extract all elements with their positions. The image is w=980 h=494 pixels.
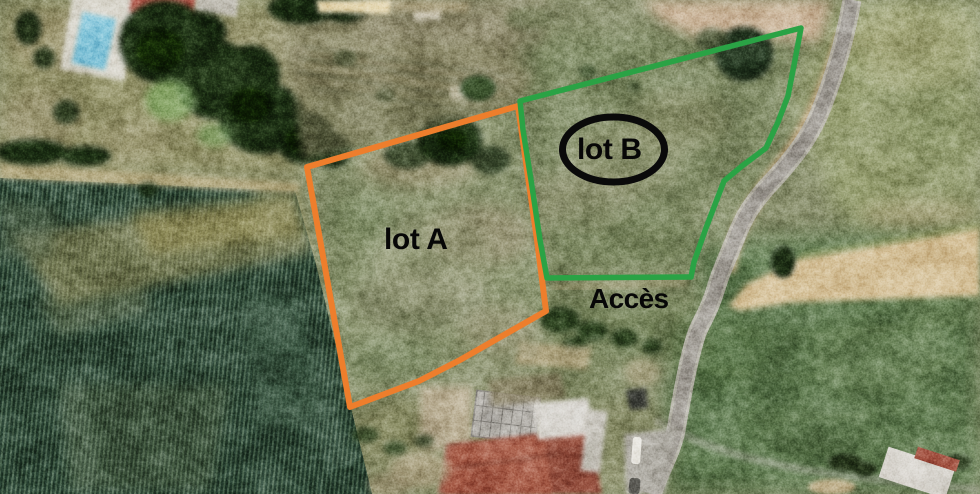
svg-text:lot A: lot A bbox=[384, 223, 448, 256]
svg-text:lot B: lot B bbox=[577, 133, 642, 166]
svg-text:Accès: Accès bbox=[589, 283, 669, 314]
